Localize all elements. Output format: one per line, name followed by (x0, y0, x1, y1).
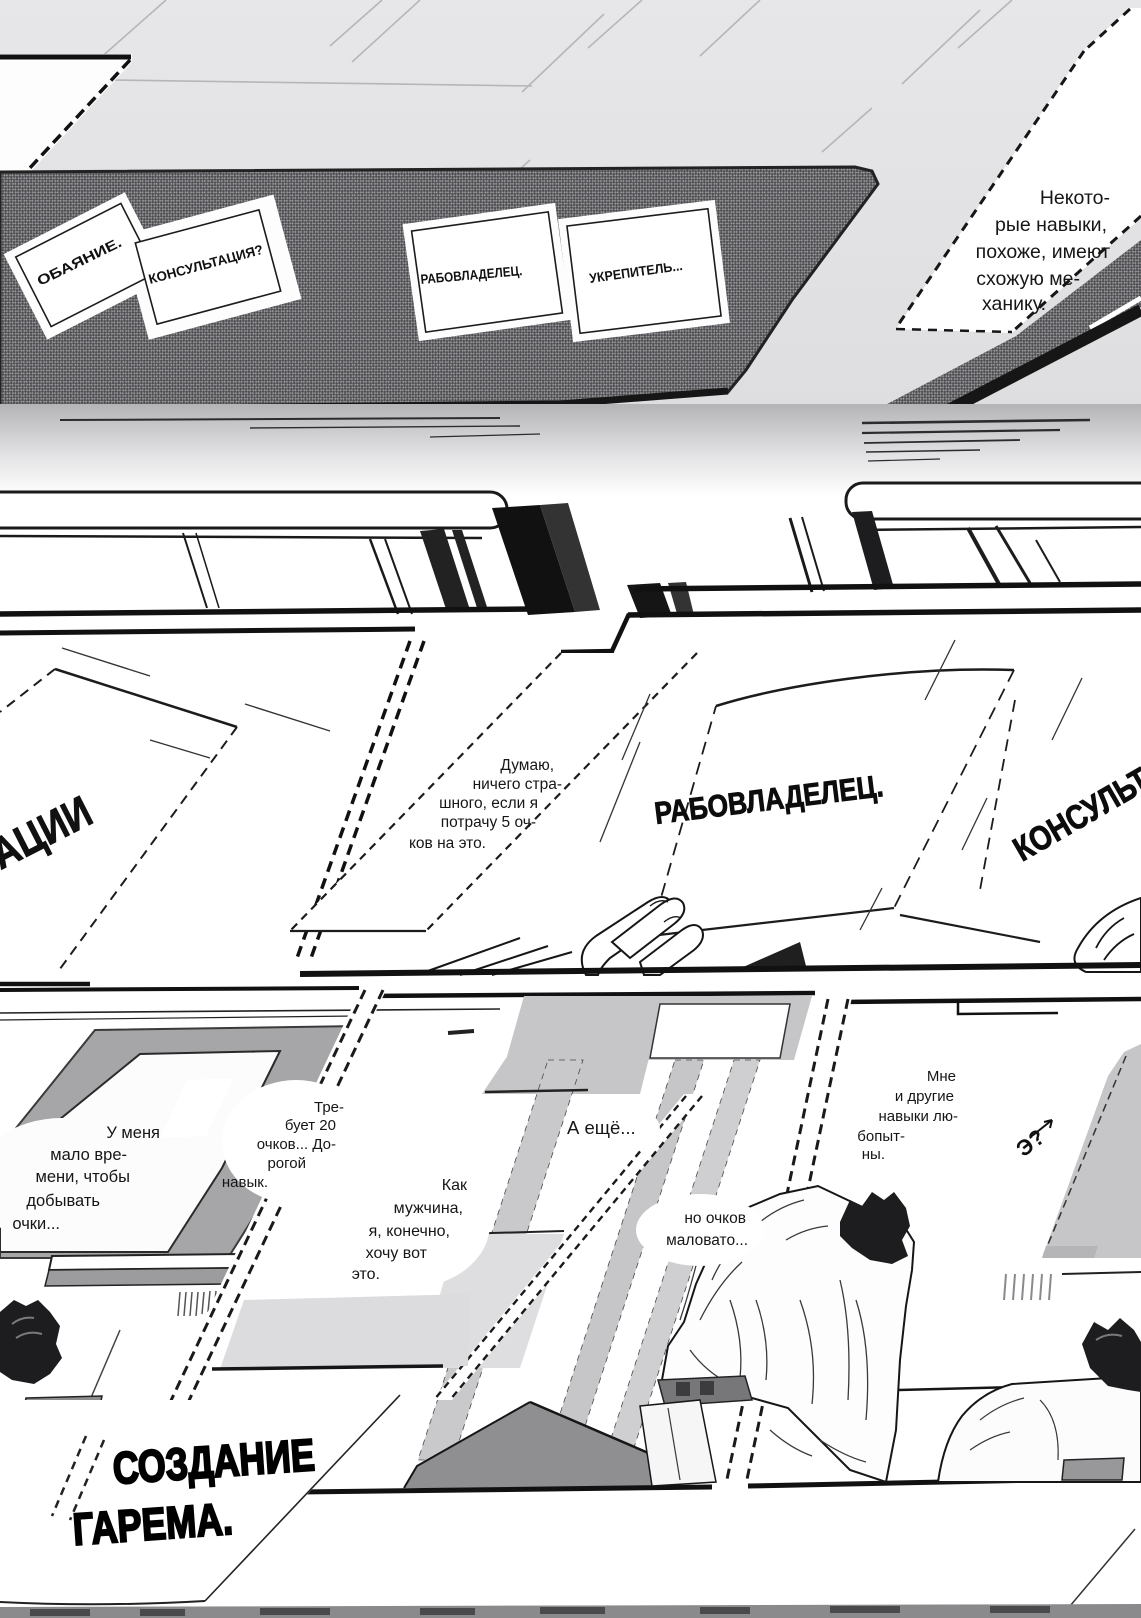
svg-text:Э?: Э? (1011, 1124, 1049, 1162)
